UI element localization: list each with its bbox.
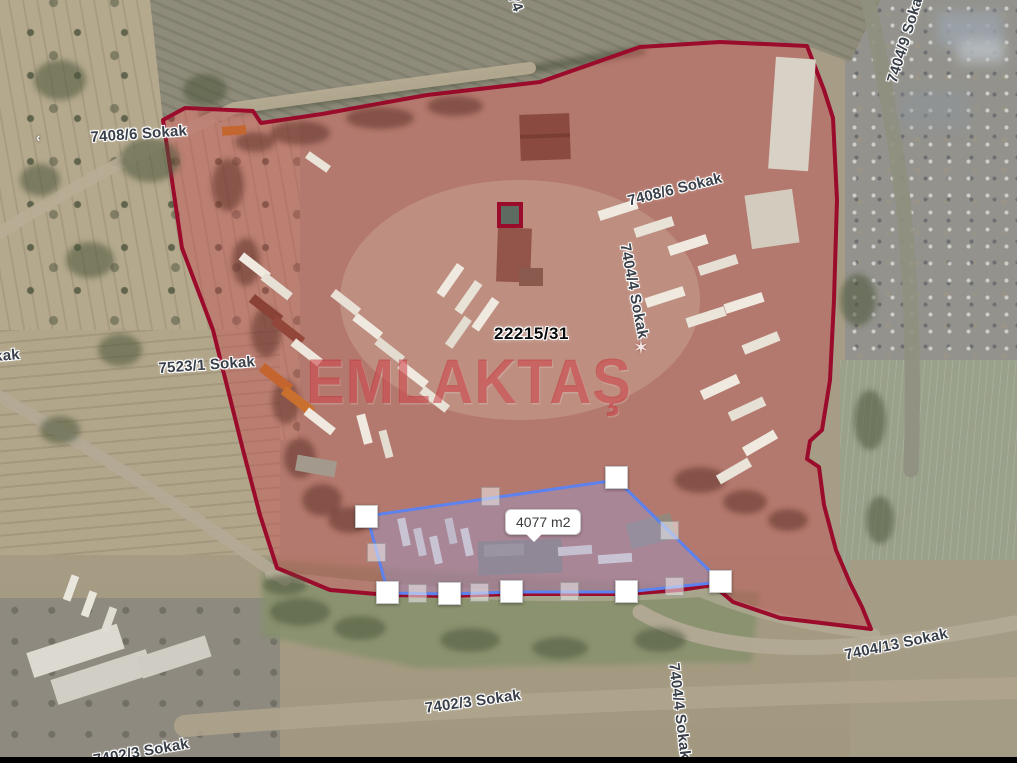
parcel-number-label: 22215/31 [494,324,569,344]
bottom-black-bar [0,757,1017,763]
area-tooltip-label: 4077 m2 [516,514,570,530]
midpoint-handle[interactable] [367,543,386,562]
highlighted-building-outline[interactable] [499,204,521,226]
vertex-handle[interactable] [709,570,732,593]
midpoint-handle[interactable] [481,487,500,506]
midpoint-handle[interactable] [660,521,679,540]
vertex-handle[interactable] [355,505,378,528]
midpoint-handle[interactable] [408,584,427,603]
area-tooltip: 4077 m2 [505,509,581,535]
vertex-handle[interactable] [500,580,523,603]
satellite-map[interactable]: 4077 m2 EMLAKTAŞ ✶ 7408/6 Sokak 7404/9 S… [0,0,1017,763]
road-arrow-icon: ‹ [36,130,40,145]
vertex-handle[interactable] [615,580,638,603]
midpoint-handle[interactable] [560,582,579,601]
vertex-handle[interactable] [376,581,399,604]
midpoint-handle[interactable] [665,577,684,596]
star-icon: ✶ [633,337,649,360]
vertex-handle[interactable] [438,582,461,605]
vertex-handle[interactable] [605,466,628,489]
midpoint-handle[interactable] [470,583,489,602]
